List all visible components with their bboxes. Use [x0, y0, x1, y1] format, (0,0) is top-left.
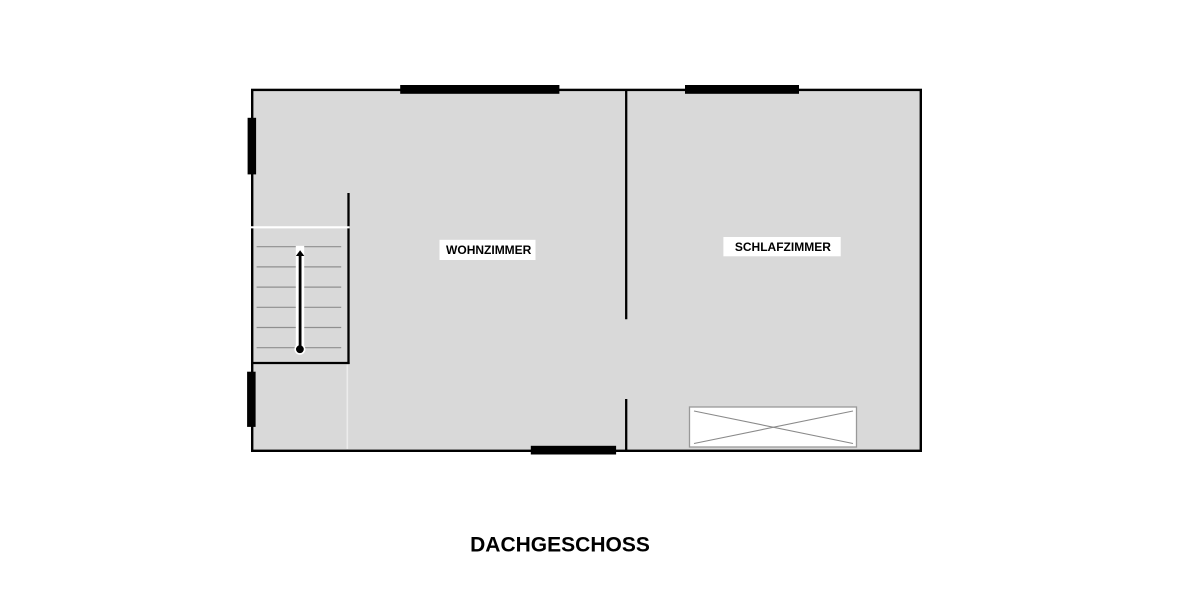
svg-text:SCHLAFZIMMER: SCHLAFZIMMER	[735, 240, 831, 254]
svg-text:DACHGESCHOSS: DACHGESCHOSS	[470, 533, 650, 556]
svg-text:WOHNZIMMER: WOHNZIMMER	[446, 243, 532, 257]
